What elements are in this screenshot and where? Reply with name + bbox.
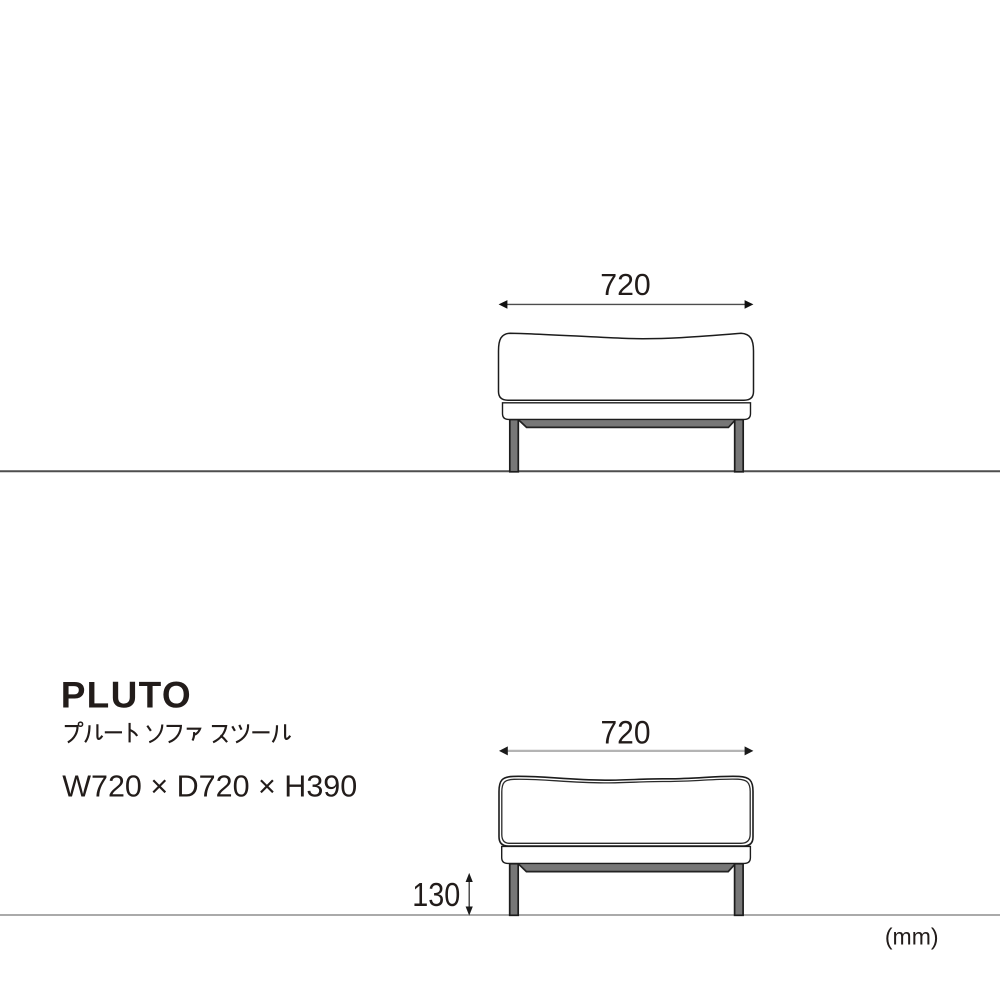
svg-text:W720 × D720 × H390: W720 × D720 × H390 <box>62 770 357 804</box>
svg-text:130: 130 <box>412 876 460 913</box>
svg-text:PLUTO: PLUTO <box>61 675 192 716</box>
svg-text:720: 720 <box>601 715 651 751</box>
svg-text:720: 720 <box>600 267 651 302</box>
svg-text:(mm): (mm) <box>885 924 939 950</box>
